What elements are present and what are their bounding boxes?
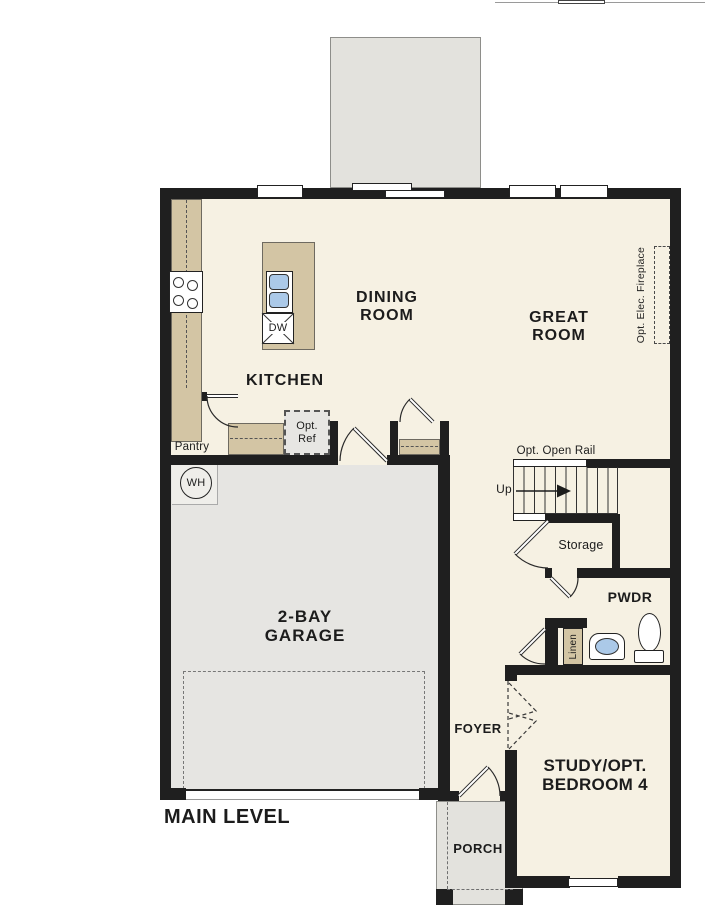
closet-right-wall — [440, 421, 449, 455]
range — [169, 271, 203, 313]
up-label: Up — [492, 483, 516, 496]
mud-counter-dashed — [230, 438, 282, 439]
island-sink — [266, 271, 293, 313]
pwdr-label: PWDR — [593, 590, 667, 606]
study-window — [568, 878, 618, 887]
garage-label: 2-BAY GARAGE — [225, 607, 385, 645]
storage-label: Storage — [544, 538, 618, 552]
front-door-left-stub — [438, 791, 459, 801]
opt-ref-label-line2: Ref — [296, 433, 318, 446]
stair-open-rail-top — [513, 459, 587, 467]
opt-open-rail-label: Opt. Open Rail — [506, 445, 606, 458]
fireplace-label: Opt. Elec. Fireplace — [635, 247, 647, 343]
burner-icon — [187, 298, 198, 309]
study-bottom-wall-left — [505, 876, 570, 888]
linen-wall-left — [545, 618, 558, 665]
study-label: STUDY/OPT. BEDROOM 4 — [513, 756, 677, 794]
garage-door — [186, 789, 419, 800]
burner-icon — [173, 277, 184, 288]
patio — [330, 37, 481, 188]
stair-treads — [513, 467, 618, 514]
main-level-title: MAIN LEVEL — [164, 806, 290, 828]
kitchen-garage-wall-left — [160, 455, 338, 465]
linen-closet: Linen — [563, 628, 583, 665]
floor-plan: Opt. Ref Opt. Elec. Fireplace Linen WH — [0, 0, 705, 918]
fireplace-dashed-box — [654, 246, 670, 344]
closet-left-wall — [390, 421, 398, 455]
porch-label: PORCH — [436, 842, 520, 857]
garage-clearance-dashed — [183, 671, 425, 789]
dishwasher-label: DW — [268, 322, 289, 334]
pwdr-bottom-wall — [505, 665, 670, 675]
great-room-window-2 — [560, 185, 608, 198]
closet-shelf — [399, 439, 440, 455]
closet-shelf-dashed — [401, 446, 438, 447]
foyer-label: FOYER — [438, 722, 518, 737]
sliding-door-lower — [385, 190, 445, 198]
burner-icon — [173, 295, 184, 306]
stair-open-rail-bottom — [513, 513, 546, 521]
study-bottom-wall-right — [618, 876, 681, 888]
mud-counter — [228, 423, 284, 455]
kitchen-label: KITCHEN — [225, 372, 345, 390]
storage-top-wall — [545, 514, 620, 523]
sink-bowl — [269, 292, 289, 308]
vanity-sink-bowl — [595, 638, 619, 655]
pwdr-top-wall — [577, 568, 670, 578]
great-room-label: GREAT ROOM — [509, 309, 609, 345]
garage-foyer-wall — [438, 455, 450, 800]
burner-icon — [187, 280, 198, 291]
pantry-label: Pantry — [162, 441, 222, 454]
linen-label: Linen — [568, 634, 579, 659]
dining-room-label: DINING ROOM — [337, 289, 437, 325]
fireplace-label-wrap: Opt. Elec. Fireplace — [632, 244, 650, 346]
porch-post-right — [505, 889, 523, 905]
pwdr-top-wall-stub — [545, 568, 552, 578]
porch-dashed-bottom — [447, 889, 513, 890]
water-heater-label: WH — [187, 477, 206, 489]
study-left-wall-top — [505, 665, 517, 681]
toilet-tank — [634, 650, 664, 663]
kitchen-window — [257, 185, 303, 198]
opt-ref-label-line1: Opt. — [296, 420, 318, 433]
porch-post-left — [436, 889, 453, 905]
toilet-bowl — [638, 613, 661, 652]
great-room-window-1 — [509, 185, 556, 198]
optref-side-stub — [330, 421, 338, 455]
opt-ref-box: Opt. Ref — [284, 410, 330, 455]
dishwasher-label-wrap: DW — [264, 319, 292, 337]
sink-bowl — [269, 274, 289, 290]
top-cutoff-box — [558, 0, 605, 4]
water-heater-circle: WH — [180, 467, 212, 499]
garage-front-wall-left-stub — [160, 788, 186, 800]
